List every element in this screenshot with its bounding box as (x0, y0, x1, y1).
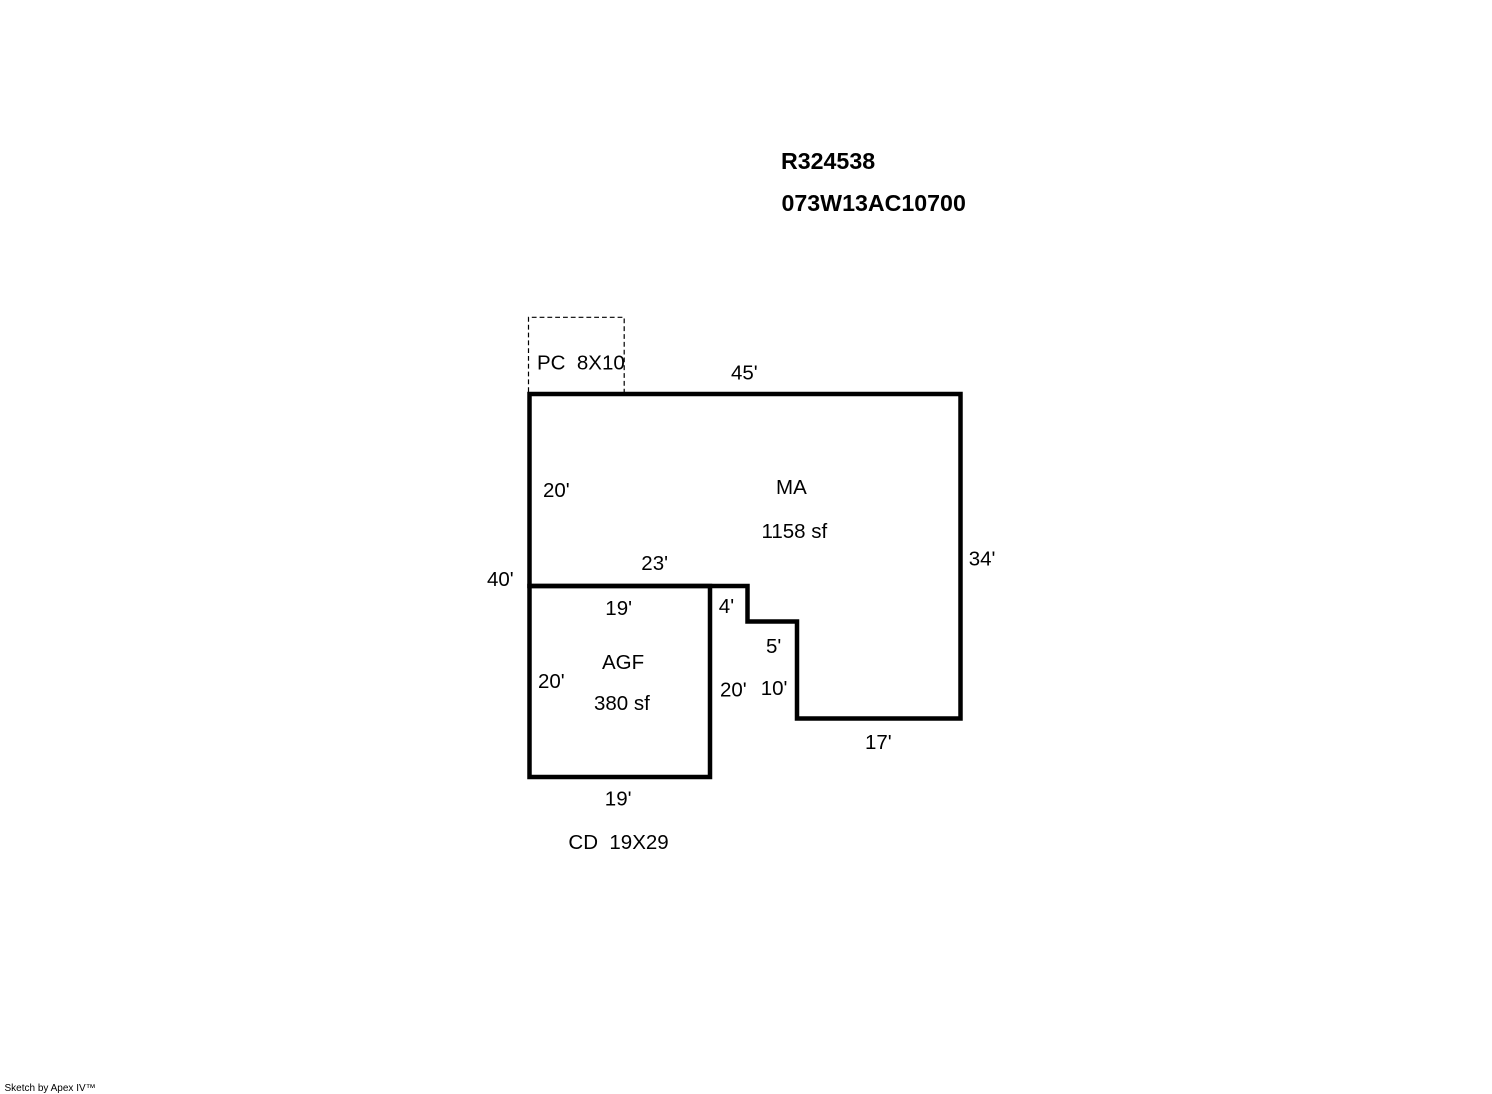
svg-text:380 sf: 380 sf (594, 692, 650, 715)
svg-text:R324538: R324538 (781, 148, 875, 174)
svg-text:20': 20' (538, 670, 565, 693)
svg-text:40': 40' (487, 568, 514, 591)
svg-text:PC 8X10: PC 8X10 (537, 352, 625, 375)
svg-text:073W13AC10700: 073W13AC10700 (782, 190, 966, 216)
svg-text:19': 19' (605, 597, 632, 620)
svg-text:17': 17' (865, 731, 892, 754)
svg-text:20': 20' (720, 679, 747, 702)
svg-text:34': 34' (969, 548, 996, 571)
svg-text:1158 sf: 1158 sf (762, 520, 828, 543)
svg-text:5': 5' (766, 635, 781, 658)
svg-text:CD 19X29: CD 19X29 (568, 831, 668, 854)
svg-text:10': 10' (761, 677, 788, 700)
svg-text:MA: MA (776, 476, 807, 499)
svg-text:19': 19' (605, 788, 632, 811)
svg-text:AGF: AGF (602, 651, 644, 674)
svg-text:4': 4' (719, 595, 734, 618)
svg-text:45': 45' (731, 362, 758, 385)
svg-text:23': 23' (641, 552, 668, 575)
svg-text:20': 20' (543, 479, 570, 502)
svg-text:Sketch by Apex IV™: Sketch by Apex IV™ (5, 1083, 96, 1094)
